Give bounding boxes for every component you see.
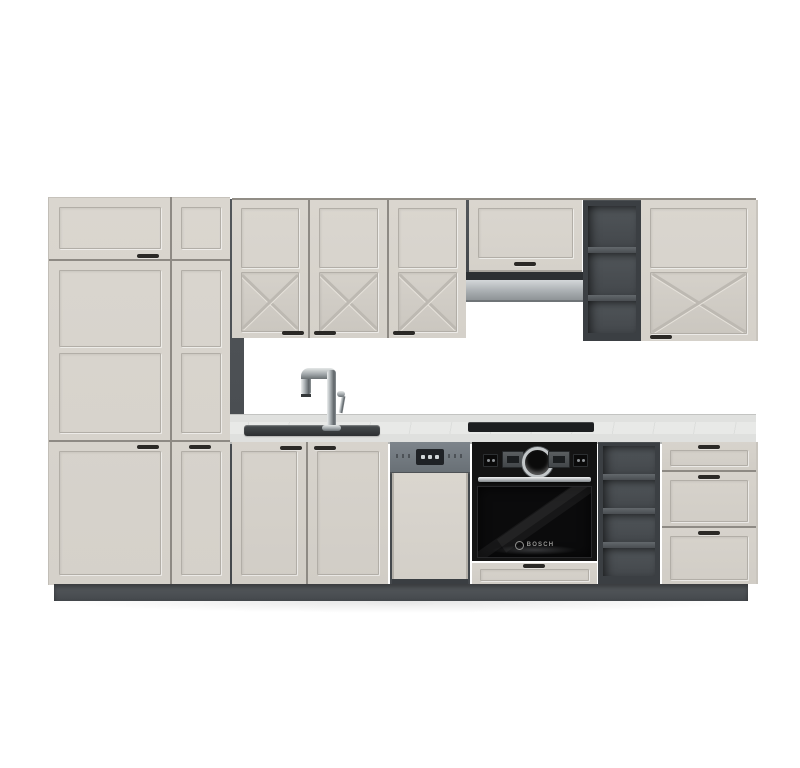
faucet-nozzle-tip bbox=[301, 394, 311, 397]
door-panel bbox=[59, 451, 161, 575]
door-handle bbox=[650, 335, 672, 339]
door-handle bbox=[514, 262, 536, 266]
door-handle bbox=[393, 331, 415, 335]
door-handle bbox=[314, 331, 336, 335]
oven-button-dot bbox=[487, 459, 490, 462]
drawer-unit bbox=[662, 442, 758, 584]
wall-cabinet-right bbox=[641, 200, 758, 341]
cooktop bbox=[468, 422, 594, 432]
shelf-compartment bbox=[588, 206, 636, 247]
faucet-lever-knob bbox=[337, 391, 345, 397]
drawer-3 bbox=[662, 528, 756, 584]
dishwasher-display bbox=[416, 449, 444, 465]
dishwasher bbox=[390, 442, 470, 584]
wall-cabinet-door-1 bbox=[232, 200, 308, 338]
door-handle bbox=[314, 446, 336, 450]
dishwasher-indicator bbox=[435, 455, 439, 459]
cross-panel bbox=[398, 272, 457, 332]
drawer-handle bbox=[698, 445, 720, 449]
base-open-shelf bbox=[598, 442, 660, 584]
door-panel bbox=[59, 353, 161, 433]
drawer-1 bbox=[662, 442, 756, 470]
extractor-hood bbox=[466, 272, 586, 300]
sink-base-door-left bbox=[232, 442, 306, 584]
dishwasher-indicator bbox=[428, 455, 432, 459]
door-panel bbox=[181, 451, 221, 575]
oven-button-left bbox=[483, 454, 498, 467]
door-panel bbox=[181, 353, 221, 433]
door-panel bbox=[181, 207, 221, 249]
drawer-handle bbox=[523, 564, 545, 568]
dishwasher-door-panel bbox=[392, 473, 468, 579]
oven-button-dot bbox=[577, 459, 580, 462]
oven-handle bbox=[478, 477, 591, 482]
cross-panel bbox=[319, 272, 378, 332]
wall-open-shelf bbox=[583, 200, 641, 341]
tall-cabinet-narrow bbox=[172, 197, 230, 585]
door-handle bbox=[137, 254, 159, 258]
door-panel bbox=[59, 207, 161, 249]
door-handle bbox=[282, 331, 304, 335]
door-panel bbox=[478, 208, 573, 258]
oven-display-left bbox=[502, 451, 524, 468]
shelf-compartment bbox=[603, 514, 655, 542]
oven-housing-unit: BOSCH bbox=[472, 442, 597, 584]
hood-cabinet bbox=[469, 200, 582, 272]
oven-button-dot bbox=[582, 459, 585, 462]
bosch-ring-icon bbox=[515, 541, 524, 550]
faucet-riser bbox=[327, 370, 336, 430]
drawer-panel bbox=[670, 536, 748, 580]
door-panel bbox=[59, 270, 161, 347]
door-gap bbox=[172, 259, 230, 261]
oven-base-drawer bbox=[472, 563, 597, 584]
door-gap bbox=[172, 440, 230, 442]
door-panel bbox=[241, 451, 297, 575]
door-gap bbox=[49, 259, 171, 261]
shelf-compartment bbox=[603, 548, 655, 576]
oven-brand-logo: BOSCH bbox=[472, 540, 597, 550]
door-panel bbox=[650, 208, 747, 268]
oven-display-right bbox=[548, 451, 570, 468]
door-gap bbox=[49, 440, 171, 442]
door-handle bbox=[280, 446, 302, 450]
dishwasher-buttons bbox=[396, 454, 412, 458]
faucet bbox=[296, 364, 356, 432]
shelf-compartment bbox=[603, 480, 655, 508]
door-panel bbox=[181, 270, 221, 347]
hood-front bbox=[466, 280, 586, 302]
cross-panel bbox=[650, 272, 747, 334]
wall-cabinet-door-2 bbox=[310, 200, 387, 338]
oven-button-right bbox=[573, 454, 588, 467]
kitchen-product-photo: BOSCH bbox=[0, 0, 800, 768]
cross-panel bbox=[241, 272, 299, 332]
hood-top-strip bbox=[466, 272, 586, 280]
shelf-compartment bbox=[588, 253, 636, 295]
drawer-handle bbox=[698, 475, 720, 479]
door-handle bbox=[137, 445, 159, 449]
door-panel bbox=[317, 451, 379, 575]
door-panel bbox=[398, 208, 457, 268]
dishwasher-buttons bbox=[448, 454, 464, 458]
bosch-wordmark: BOSCH bbox=[527, 542, 555, 548]
shelf-compartment bbox=[603, 446, 655, 474]
built-in-oven: BOSCH bbox=[472, 442, 597, 561]
door-panel bbox=[319, 208, 378, 268]
door-panel bbox=[241, 208, 299, 268]
door-handle bbox=[189, 445, 211, 449]
dishwasher-control-panel bbox=[390, 442, 470, 474]
drawer-panel bbox=[670, 450, 748, 466]
tall-cabinet-wide bbox=[48, 197, 171, 585]
wall-cabinet-door-3 bbox=[389, 200, 466, 338]
shelf-compartment bbox=[588, 301, 636, 333]
faucet-nozzle bbox=[301, 379, 311, 394]
oven-button-dot bbox=[492, 459, 495, 462]
drawer-panel bbox=[480, 569, 589, 581]
floor-shadow bbox=[40, 601, 760, 613]
dishwasher-indicator bbox=[421, 455, 425, 459]
sink-base-door-right bbox=[308, 442, 388, 584]
plinth bbox=[54, 584, 748, 601]
drawer-panel bbox=[670, 480, 748, 522]
drawer-handle bbox=[698, 531, 720, 535]
faucet-lever bbox=[339, 396, 346, 413]
faucet-base bbox=[322, 425, 341, 431]
drawer-2 bbox=[662, 472, 756, 526]
